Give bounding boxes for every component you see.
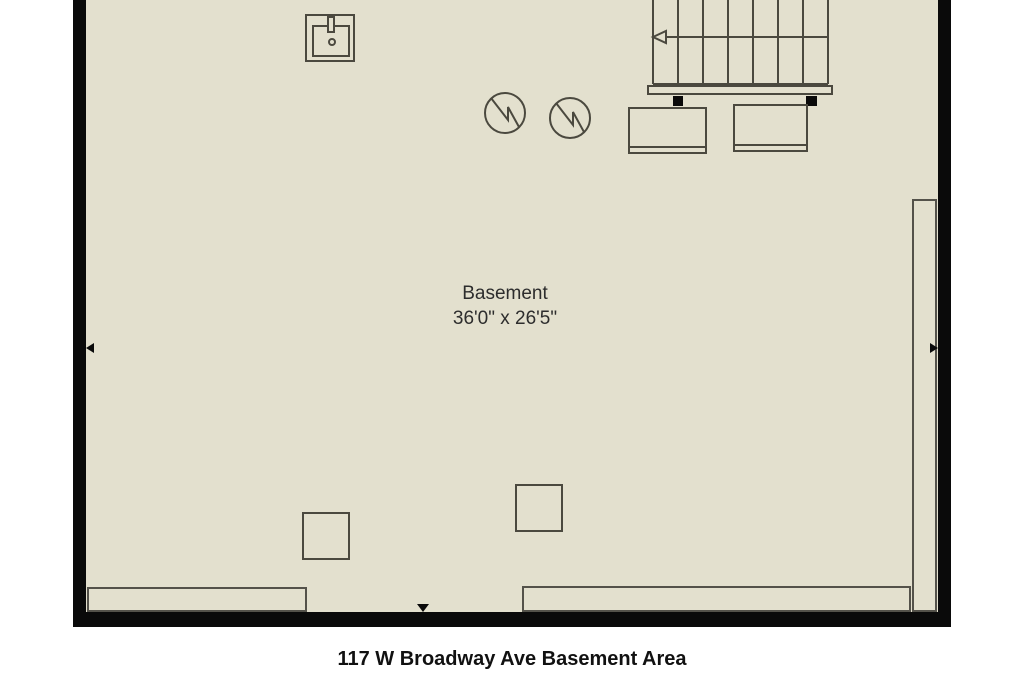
basement-floorplan: Basement 36'0" x 26'5" — [73, 0, 951, 627]
sink-icon — [305, 14, 355, 62]
room-label: Basement 36'0" x 26'5" — [405, 281, 605, 331]
stair-landing-edge — [648, 86, 832, 94]
floor-square — [302, 512, 350, 560]
staircase-icon — [644, 0, 840, 96]
sink-drain-icon — [328, 38, 336, 46]
appliance-icon — [628, 107, 707, 154]
support-post — [673, 96, 683, 106]
water-heater-icon — [548, 96, 592, 140]
measure-marker-right-icon — [930, 343, 938, 353]
water-heater-icon — [483, 91, 527, 135]
measure-marker-bottom-icon — [417, 604, 429, 612]
room-dimensions: 36'0" x 26'5" — [405, 306, 605, 331]
window-ledge — [912, 199, 937, 612]
floor-square — [515, 484, 563, 532]
window-ledge — [522, 586, 911, 612]
window-ledge — [87, 587, 307, 612]
measure-marker-left-icon — [86, 343, 94, 353]
room-name: Basement — [405, 281, 605, 306]
sink-faucet — [327, 16, 335, 33]
floorplan-caption: 117 W Broadway Ave Basement Area — [0, 648, 1024, 671]
appliance-icon — [733, 104, 808, 152]
stair-direction-arrow-icon — [653, 31, 666, 43]
